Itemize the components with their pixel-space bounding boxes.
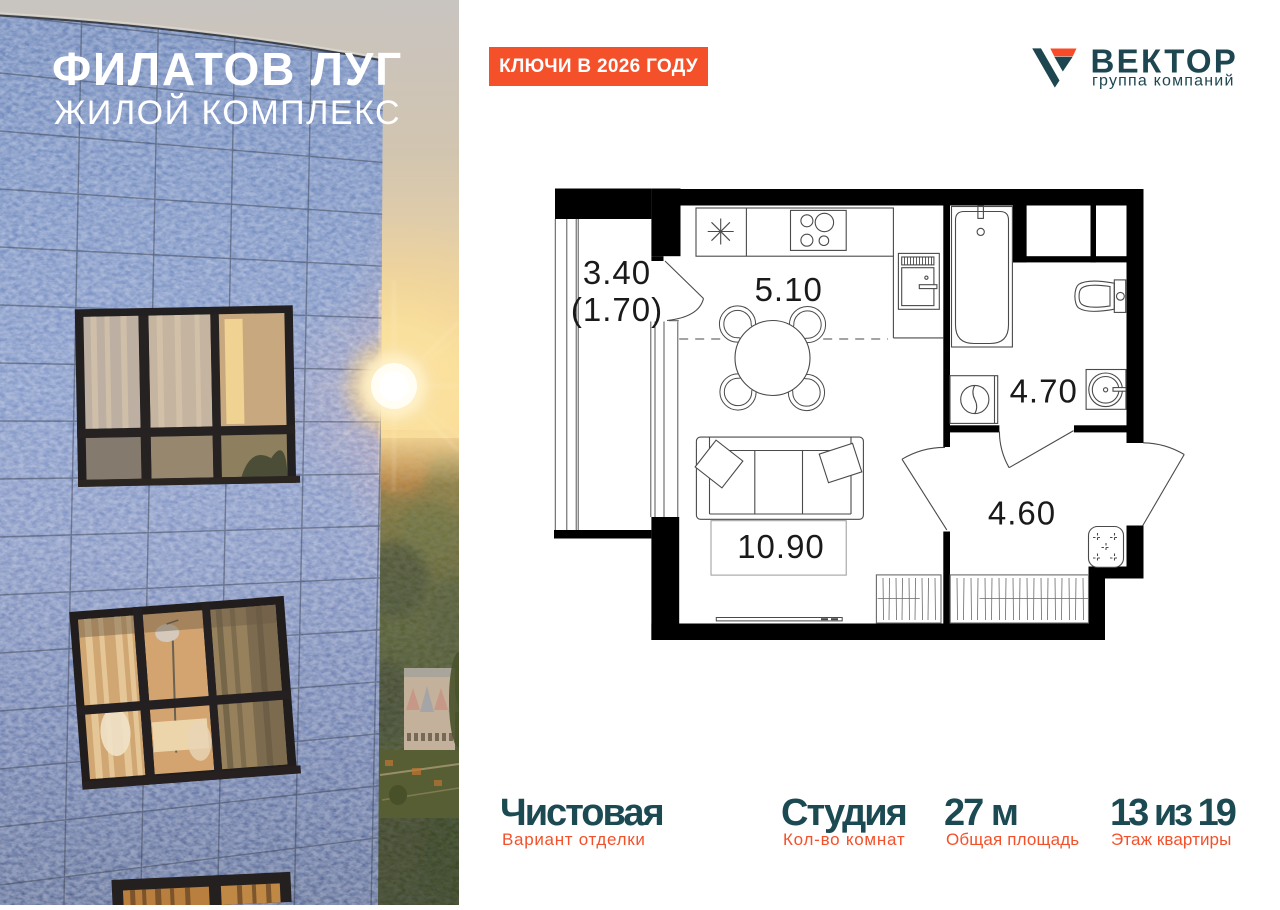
svg-text:3.40: 3.40 xyxy=(583,254,651,291)
svg-text:4.70: 4.70 xyxy=(1010,372,1078,409)
svg-text:группа компаний: группа компаний xyxy=(1092,73,1235,90)
svg-text:(1.70): (1.70) xyxy=(571,291,663,328)
svg-text:4.60: 4.60 xyxy=(988,494,1056,531)
svg-text:10.90: 10.90 xyxy=(737,528,825,565)
svg-text:5.10: 5.10 xyxy=(755,271,823,308)
